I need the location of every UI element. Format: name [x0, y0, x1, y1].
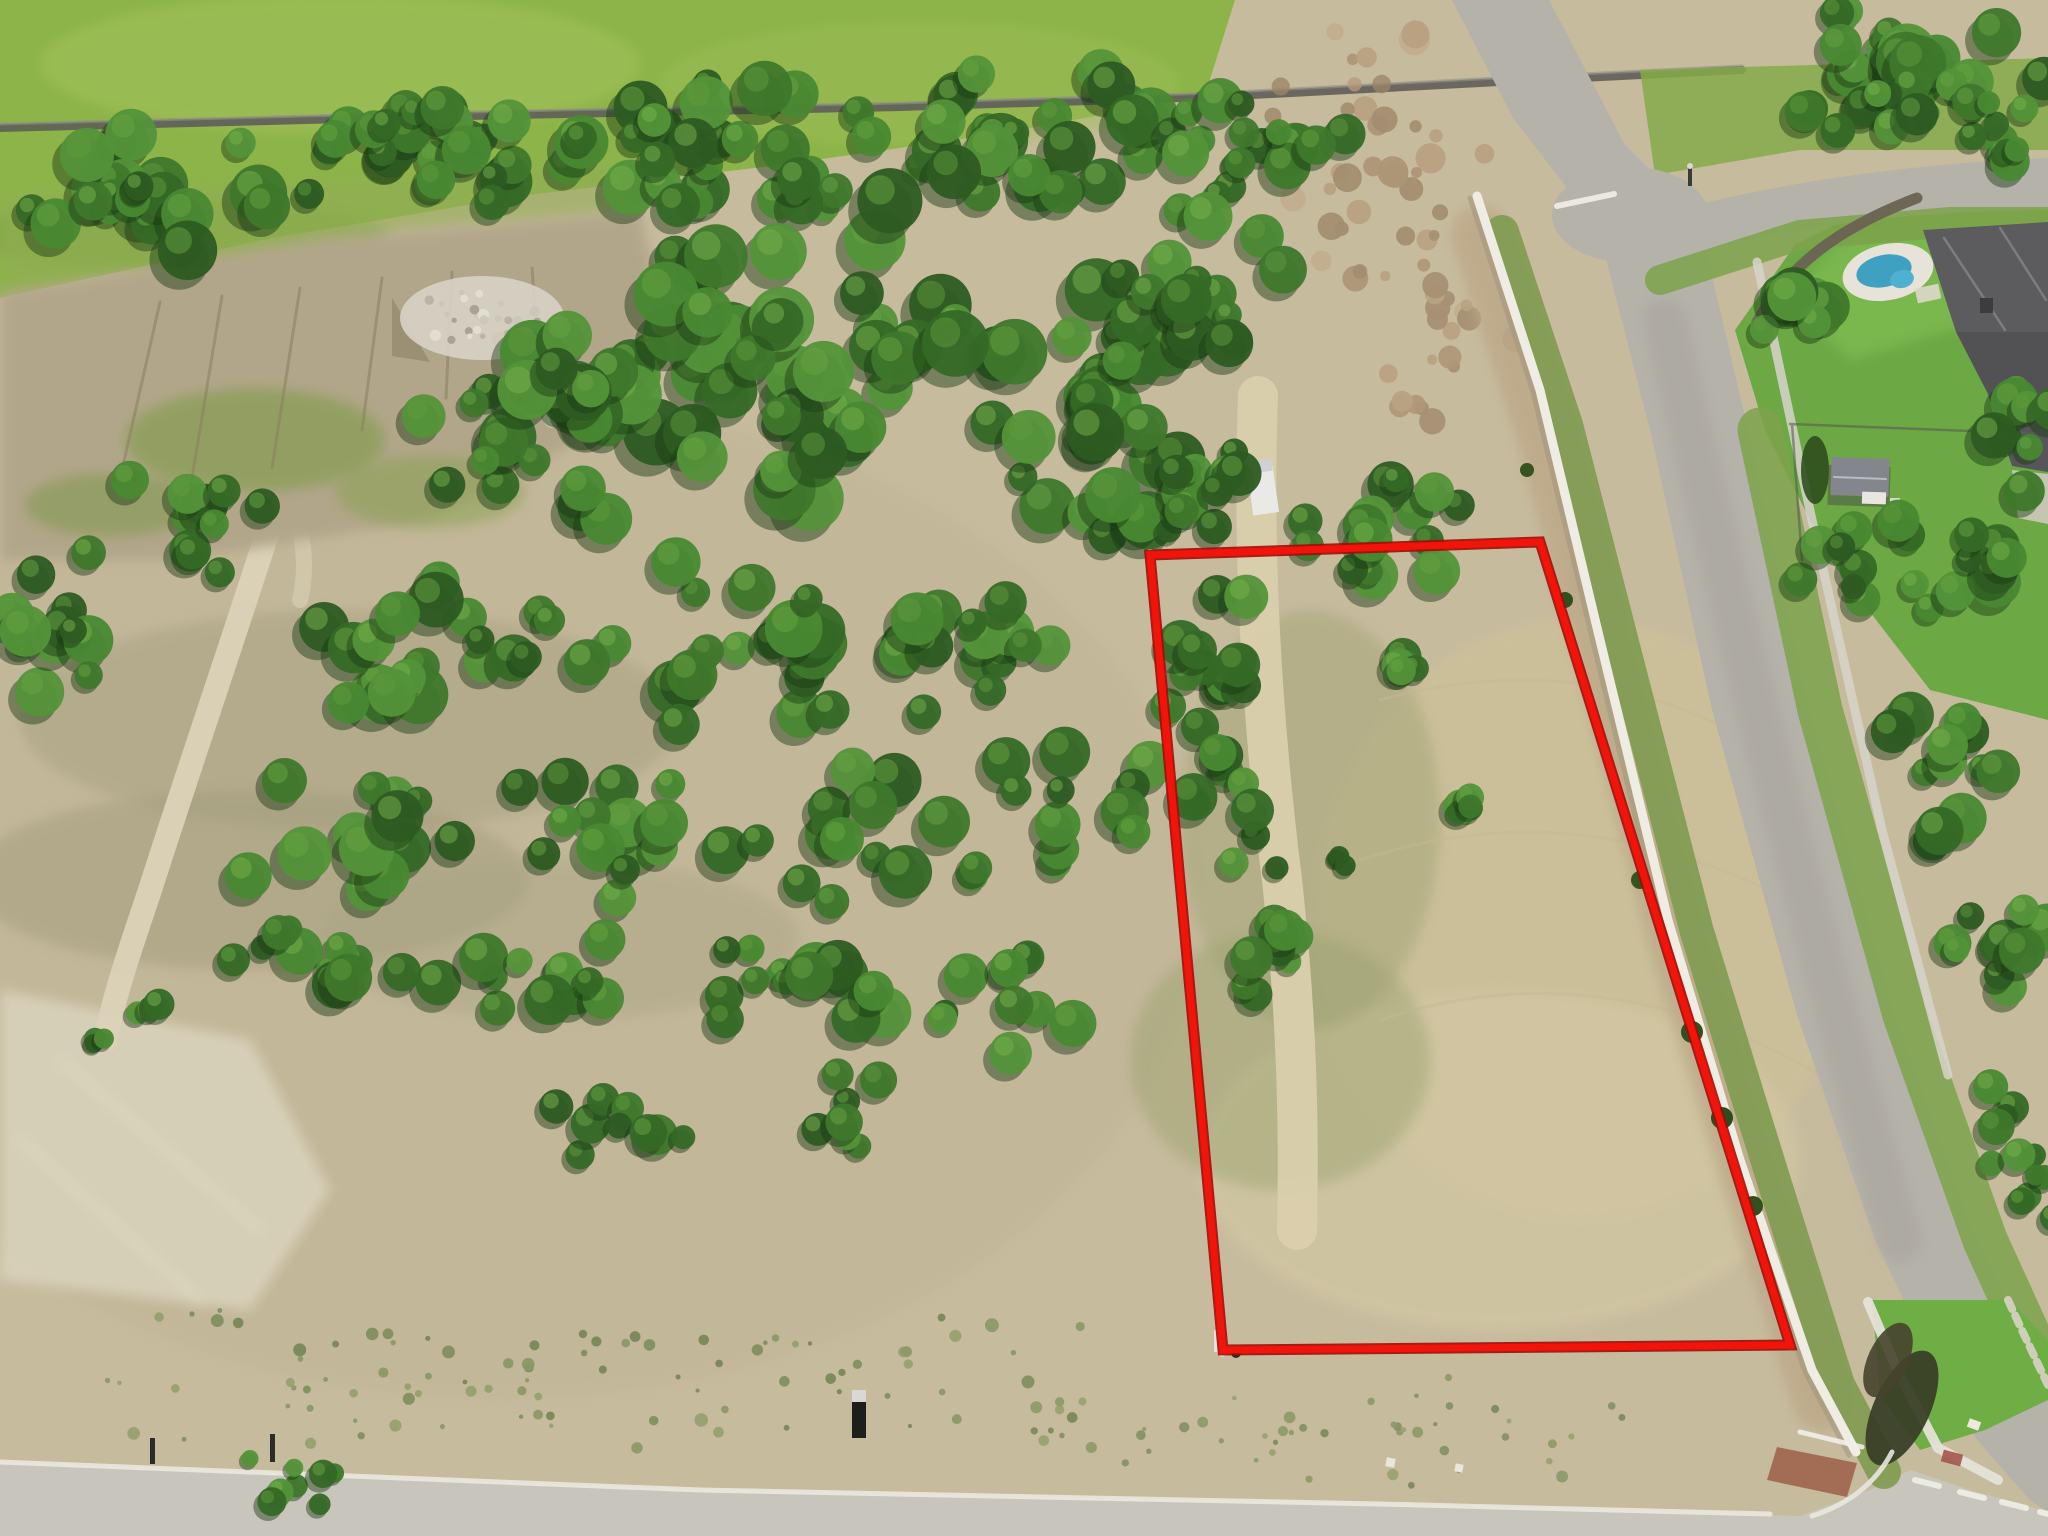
shed-hedge-row: [1801, 436, 1829, 504]
junction-sign-head: [1687, 163, 1693, 169]
roadside-sign-2: [270, 1434, 275, 1462]
junction-sign-post: [1688, 168, 1692, 186]
verge-marker-2: [1454, 1463, 1463, 1472]
aerial-photo-canvas: [0, 0, 2048, 1536]
wall-shrub-6: [1520, 463, 1534, 477]
house-chimney: [1980, 298, 1993, 313]
aerial-photo: [0, 0, 2048, 1536]
road-junction: [1552, 167, 1708, 263]
roadside-sign-1: [150, 1438, 155, 1464]
mailbox-top: [852, 1390, 866, 1402]
shed-porch: [1862, 492, 1886, 505]
verge-marker-1: [1385, 1457, 1395, 1467]
